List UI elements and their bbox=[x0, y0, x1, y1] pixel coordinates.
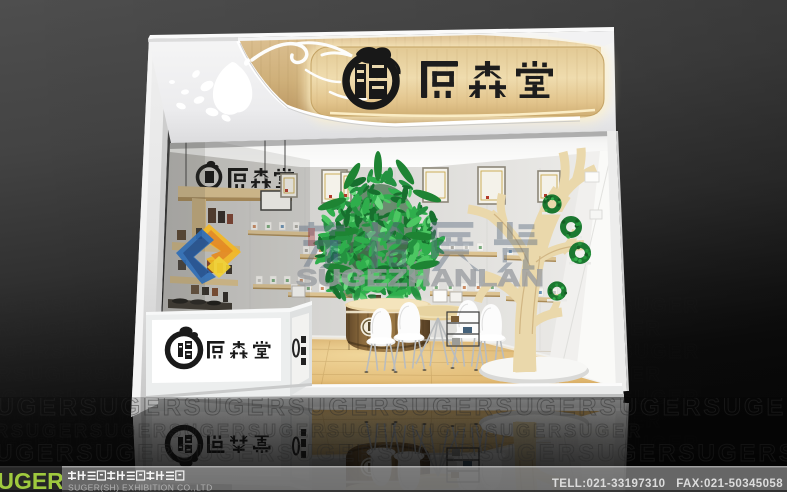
svg-text:SUGERSUGERSUGERSUGERSUGERSUGER: SUGERSUGERSUGERSUGERSUGERSUGERSUGERSUGER… bbox=[0, 421, 643, 441]
svg-text:SUGEZHANLAN: SUGEZHANLAN bbox=[296, 265, 544, 292]
svg-text:SUGER(SH) EXHIBITION CO.,LTD: SUGER(SH) EXHIBITION CO.,LTD bbox=[68, 483, 213, 492]
svg-text:SUGER: SUGER bbox=[0, 468, 64, 492]
svg-text:SUGERSUGERSUGERSUGERSUGERSUGER: SUGERSUGERSUGERSUGERSUGERSUGERSUGERSUGER… bbox=[0, 440, 787, 467]
svg-text:TELL:021-33197310 FAX:021-50: TELL:021-33197310 FAX:021-50345058 bbox=[552, 478, 783, 490]
